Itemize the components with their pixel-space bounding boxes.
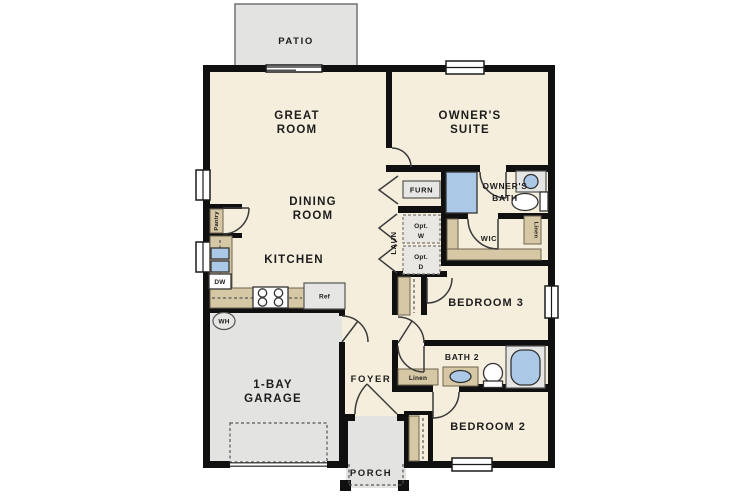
great-room-label: GREAT [274, 110, 319, 122]
wall-segment [404, 414, 409, 468]
opt-dryer-label: Opt. [414, 254, 428, 261]
bath2-toilet [484, 364, 503, 383]
refrigerator-label: Ref [319, 294, 331, 301]
wall-segment [339, 342, 345, 468]
bedroom2-closet-shelf [409, 416, 419, 461]
wall-segment [441, 260, 555, 266]
burner [258, 289, 266, 297]
floorplan-drawing: PATIO GREAT ROOM OWNER'S SUITE DINING RO… [0, 0, 750, 500]
opt-dryer-label: D [419, 264, 424, 271]
floor-areas [206, 4, 552, 488]
dining-room-label: ROOM [293, 210, 334, 222]
furnace-label: FURN [410, 186, 433, 195]
patio-label: PATIO [278, 36, 314, 47]
burner [258, 298, 266, 306]
floorplan-page: PATIO GREAT ROOM OWNER'S SUITE DINING RO… [0, 0, 750, 500]
wall-segment [492, 461, 555, 468]
opt-washer-label: W [418, 233, 425, 240]
bath2-tub [511, 350, 540, 385]
wall-segment [398, 206, 446, 213]
bath2-sink [450, 371, 471, 383]
wall-segment [424, 340, 555, 346]
wall-segment [548, 65, 555, 468]
wic-shelf-bottom [447, 249, 541, 260]
kitchen-sink-basin [211, 248, 229, 259]
linen-wic-label: Linen [533, 222, 539, 239]
water-heater-label: WH [218, 319, 229, 326]
bedroom3-closet-shelf [398, 277, 410, 315]
porch-label: PORCH [350, 468, 392, 479]
great-room-label: ROOM [277, 124, 318, 136]
burner [274, 289, 282, 297]
shower [446, 172, 477, 213]
wall-segment [392, 277, 398, 315]
wall-segment [203, 461, 230, 468]
bath2-toilet-tank [484, 381, 503, 388]
bath2-label: BATH 2 [445, 352, 479, 362]
wall-segment [447, 213, 468, 219]
wall-segment [348, 414, 355, 421]
owners-bath-label: BATH [492, 193, 518, 203]
owners-bath-label: OWNER'S [482, 181, 527, 191]
bedroom2-label: BEDROOM 2 [450, 421, 526, 433]
wall-segment [386, 165, 480, 172]
garage-label: 1-BAY [253, 379, 292, 391]
stove [253, 287, 288, 308]
owners-suite-label: OWNER'S [439, 110, 502, 122]
sliding-door [266, 65, 322, 72]
wall-segment [421, 277, 427, 315]
pantry-label: Pantry [214, 211, 220, 231]
garage-label: GARAGE [244, 393, 302, 405]
opt-washer-label: Opt. [414, 223, 428, 230]
foyer-label: FOYER [351, 374, 392, 385]
wall-segment [406, 461, 452, 468]
owners-suite-label: SUITE [450, 124, 490, 136]
kitchen-label: KITCHEN [264, 254, 324, 266]
kitchen-sink-basin [211, 261, 229, 272]
wall-segment [203, 65, 555, 72]
linen-bath2-label: Linen [409, 375, 427, 382]
burner [274, 298, 282, 306]
dishwasher-label: DW [214, 279, 226, 286]
wall-segment [397, 414, 404, 421]
owners-bath-toilet-tank [540, 192, 548, 211]
wall-segment [386, 72, 392, 148]
wall-segment [428, 411, 433, 461]
wic-label: WIC [481, 234, 497, 243]
bedroom3-label: BEDROOM 3 [448, 297, 524, 309]
dining-room-label: DINING [289, 196, 336, 208]
laundry-label: LAUN [389, 231, 398, 254]
wall-segment [404, 411, 433, 415]
